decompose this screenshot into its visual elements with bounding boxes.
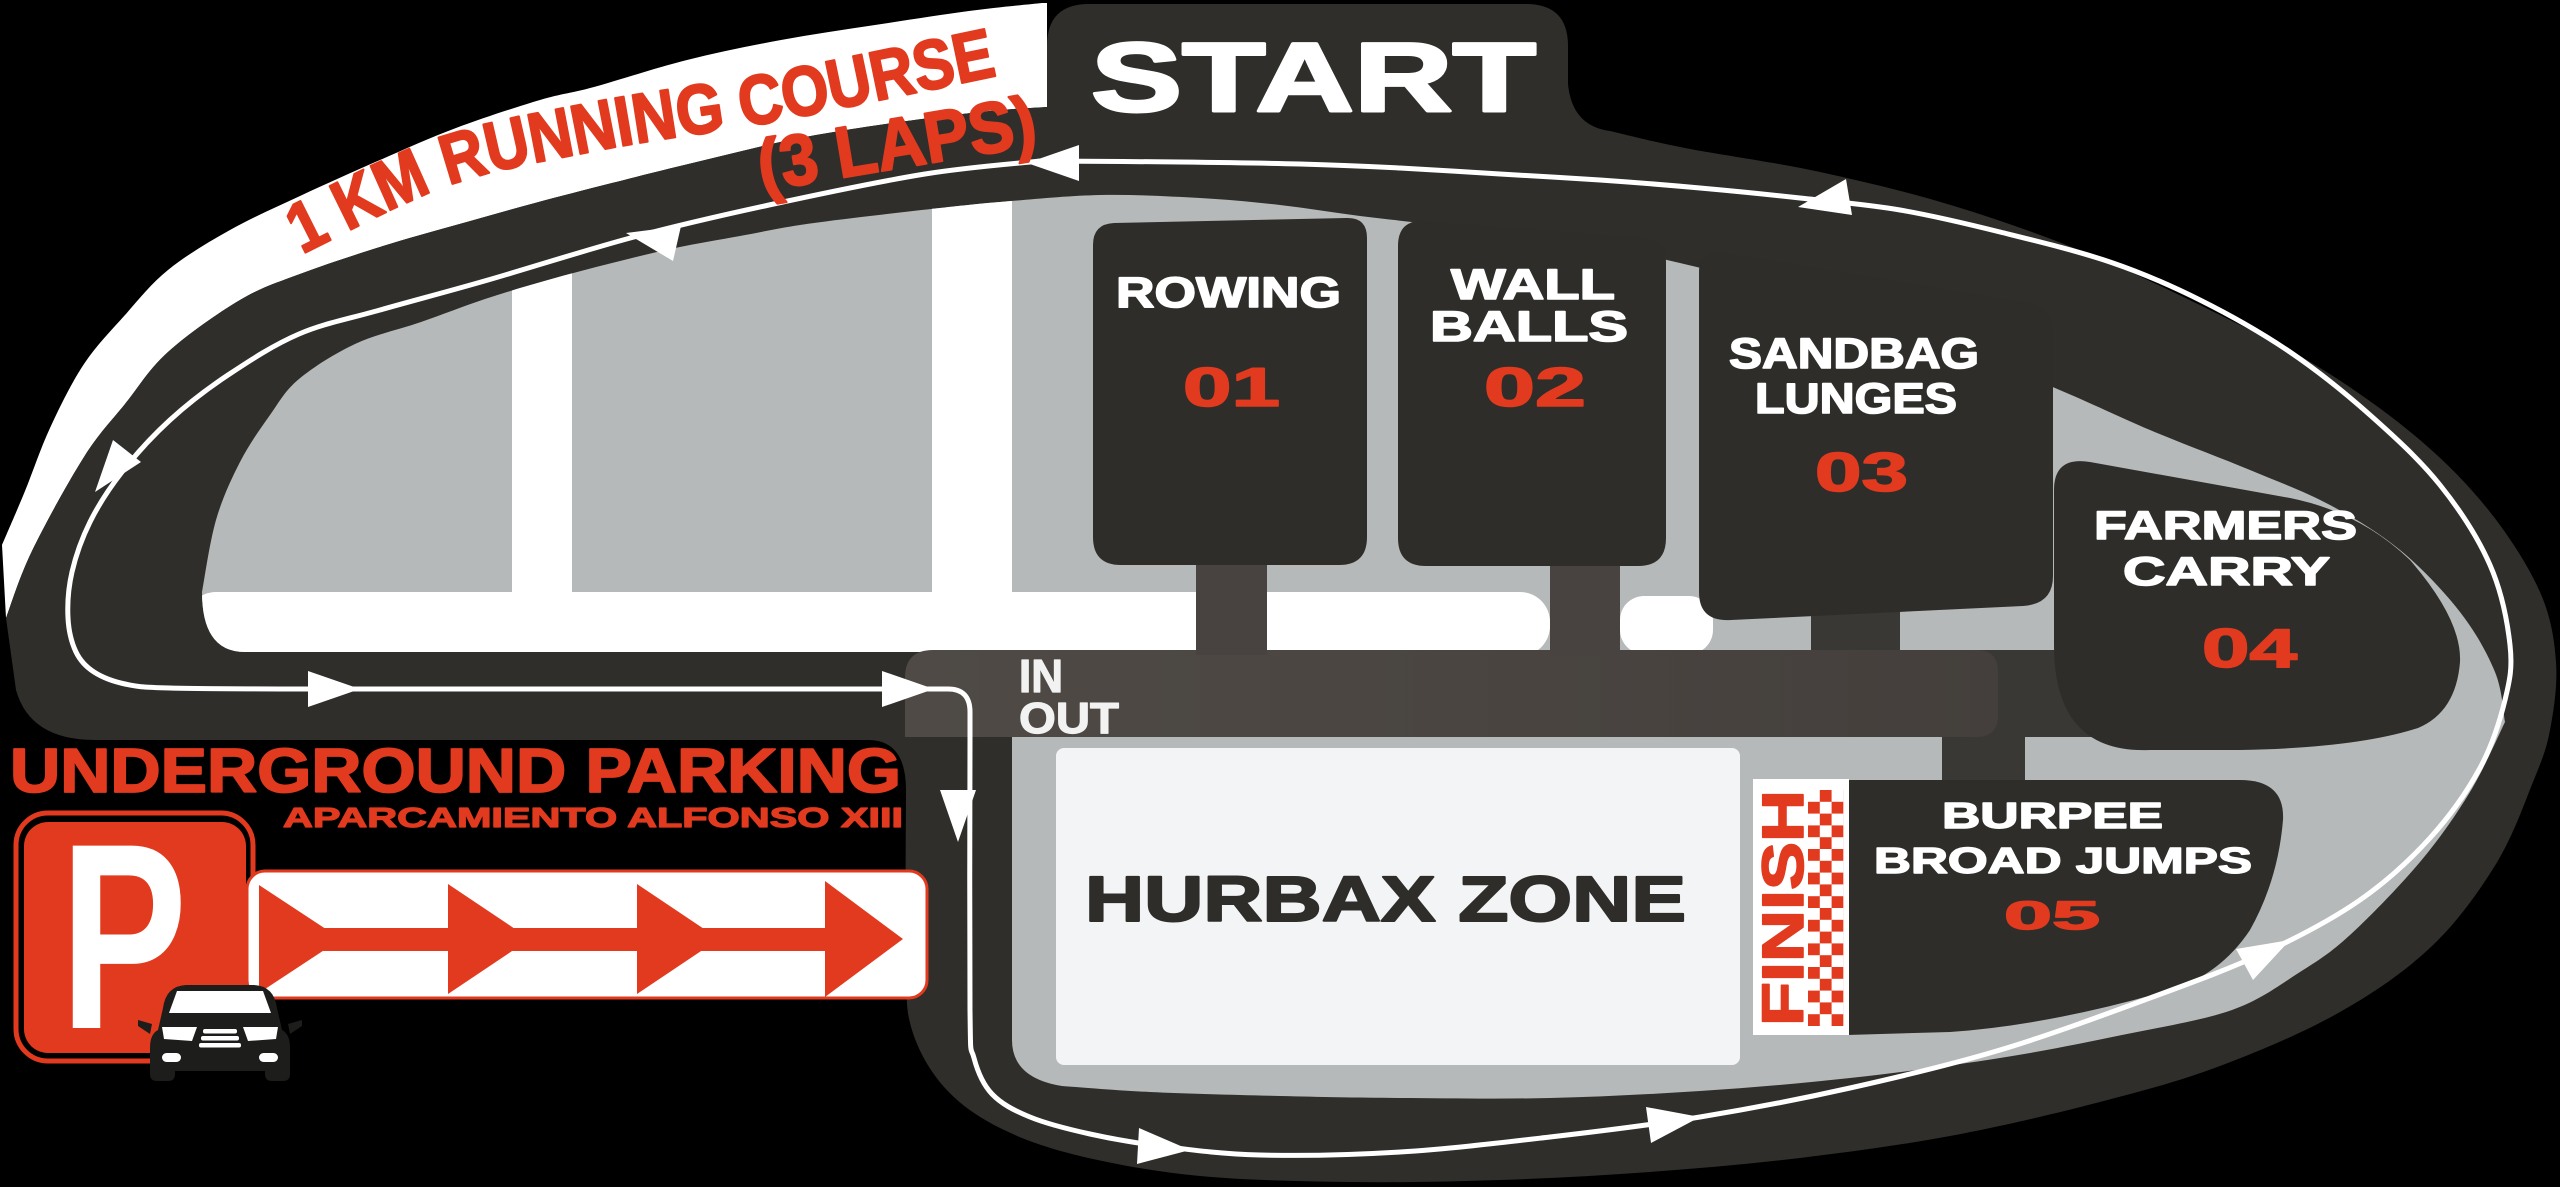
svg-text:05: 05 bbox=[2004, 894, 2100, 938]
svg-text:LUNGES: LUNGES bbox=[1755, 375, 1957, 423]
svg-text:HURBAX ZONE: HURBAX ZONE bbox=[1085, 863, 1686, 935]
svg-text:FARMERS: FARMERS bbox=[2094, 504, 2357, 548]
svg-text:BURPEE: BURPEE bbox=[1942, 795, 2163, 836]
svg-text:FINISH: FINISH bbox=[1751, 790, 1816, 1026]
svg-text:BROAD JUMPS: BROAD JUMPS bbox=[1874, 840, 2252, 881]
svg-text:02: 02 bbox=[1484, 356, 1586, 418]
svg-text:01: 01 bbox=[1183, 356, 1280, 418]
svg-text:ROWING: ROWING bbox=[1116, 269, 1341, 317]
svg-text:START: START bbox=[1091, 22, 1536, 132]
svg-text:BALLS: BALLS bbox=[1430, 303, 1628, 351]
svg-text:WALL: WALL bbox=[1451, 261, 1615, 309]
svg-text:03: 03 bbox=[1815, 441, 1908, 503]
svg-text:APARCAMIENTO ALFONSO XIII: APARCAMIENTO ALFONSO XIII bbox=[283, 802, 903, 833]
svg-text:04: 04 bbox=[2202, 617, 2298, 679]
svg-text:CARRY: CARRY bbox=[2123, 550, 2330, 594]
svg-text:OUT: OUT bbox=[1019, 694, 1119, 743]
svg-text:SANDBAG: SANDBAG bbox=[1729, 330, 1979, 378]
